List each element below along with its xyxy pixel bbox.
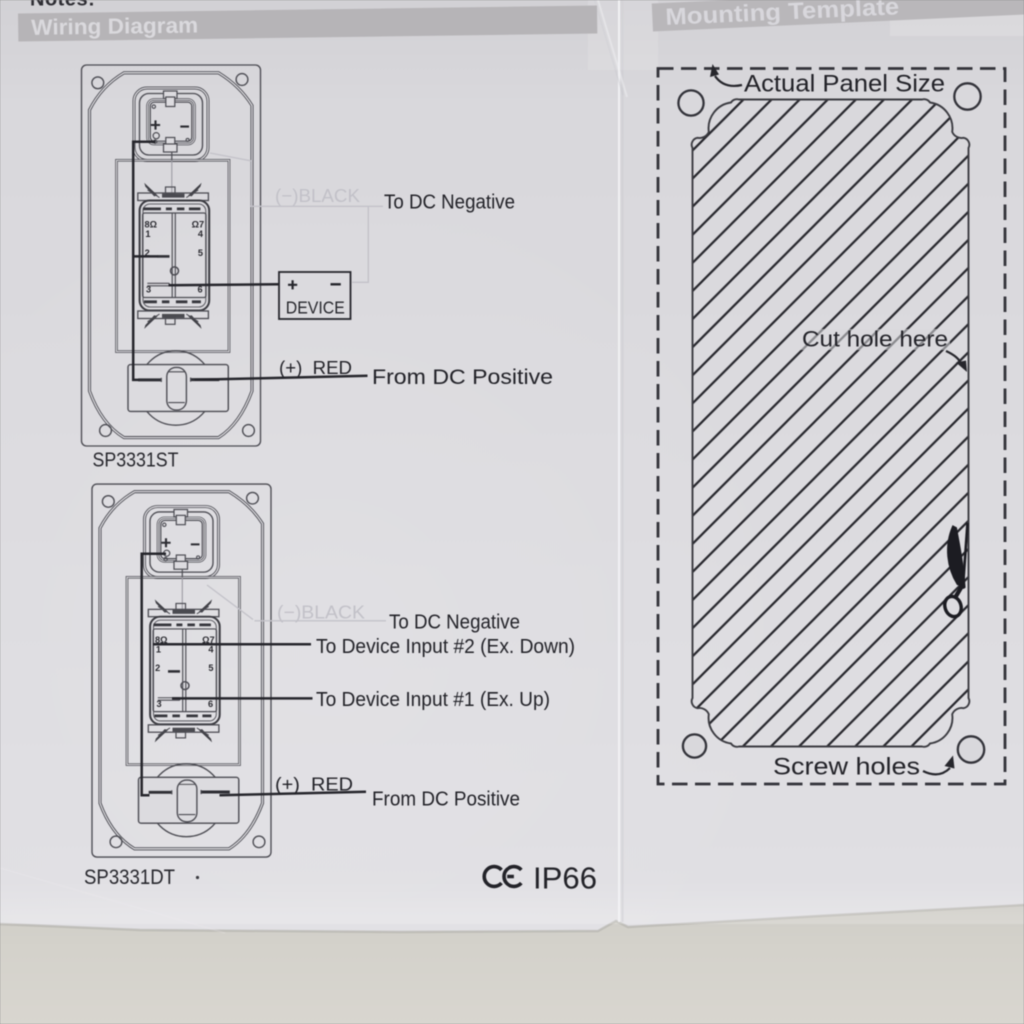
svg-text:(+) RED: (+) RED	[275, 775, 353, 795]
svg-text:To DC Negative: To DC Negative	[384, 192, 515, 214]
svg-text:SP3331DT: SP3331DT	[84, 866, 175, 889]
svg-text:(+) RED: (+) RED	[279, 358, 352, 378]
svg-text:To DC Negative: To DC Negative	[389, 612, 520, 634]
svg-text:SP3331ST: SP3331ST	[93, 449, 179, 472]
svg-text:Notes:: Notes:	[30, 0, 95, 11]
svg-text:From DC Positive: From DC Positive	[372, 789, 520, 811]
svg-text:(−)BLACK: (−)BLACK	[275, 185, 361, 206]
svg-text:To Device Input #2 (Ex. Down): To Device Input #2 (Ex. Down)	[316, 636, 575, 658]
svg-text:To Device Input #1 (Ex. Up): To Device Input #1 (Ex. Up)	[316, 689, 550, 711]
svg-text:Cut hole here: Cut hole here	[802, 327, 948, 352]
svg-text:(−)BLACK: (−)BLACK	[277, 602, 366, 623]
svg-text:Wiring Diagram: Wiring Diagram	[31, 13, 198, 40]
svg-text:From DC Positive: From DC Positive	[372, 366, 553, 389]
svg-text:IP66: IP66	[533, 861, 597, 896]
svg-text:Actual Panel Size: Actual Panel Size	[744, 71, 945, 98]
svg-text:DEVICE: DEVICE	[286, 297, 345, 317]
svg-text:Screw holes: Screw holes	[773, 754, 920, 781]
